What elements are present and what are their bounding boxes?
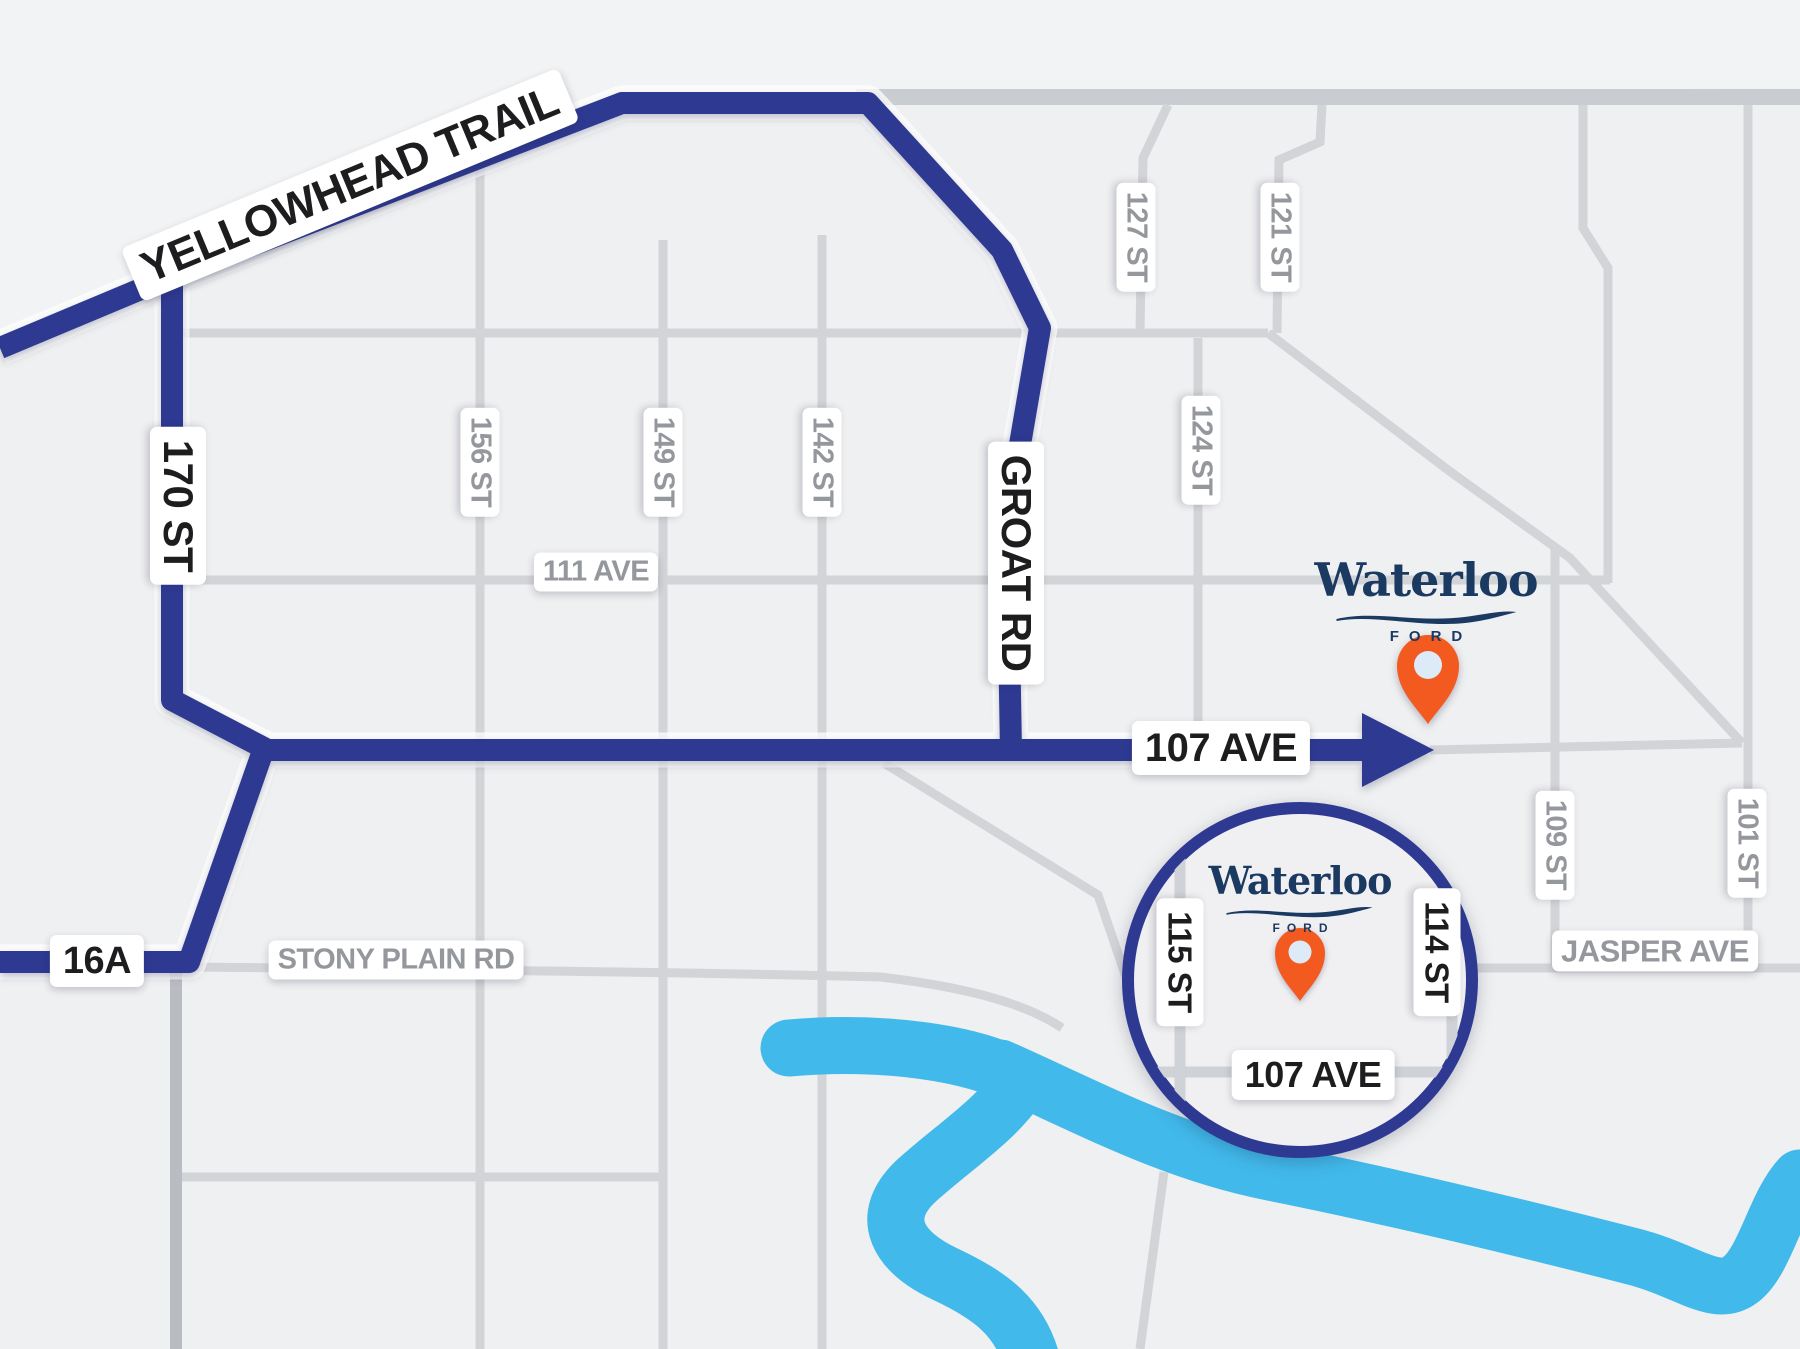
location-pin-hole (1414, 651, 1442, 679)
road-network (172, 97, 1800, 1349)
road-diagonal-downtown (1268, 333, 1742, 743)
road-stony-plain (190, 967, 1062, 1028)
road-127-st (1140, 105, 1168, 333)
road-121-st (1277, 105, 1322, 333)
road-116-st (1583, 105, 1608, 583)
route-170st-16a (0, 270, 264, 962)
location-pin-icon (1397, 635, 1459, 724)
map-canvas (0, 0, 1800, 1349)
map: YELLOWHEAD TRAIL 170 ST GROAT RD 107 AVE… (0, 0, 1800, 1349)
location-pin-hole (1289, 941, 1312, 964)
road-below-inset (1140, 1172, 1164, 1349)
route-arrowhead-icon (1362, 713, 1434, 787)
highland-shade (0, 0, 1800, 336)
dealership-pin-main (1397, 635, 1459, 724)
road-107-ave-east (1430, 743, 1742, 750)
